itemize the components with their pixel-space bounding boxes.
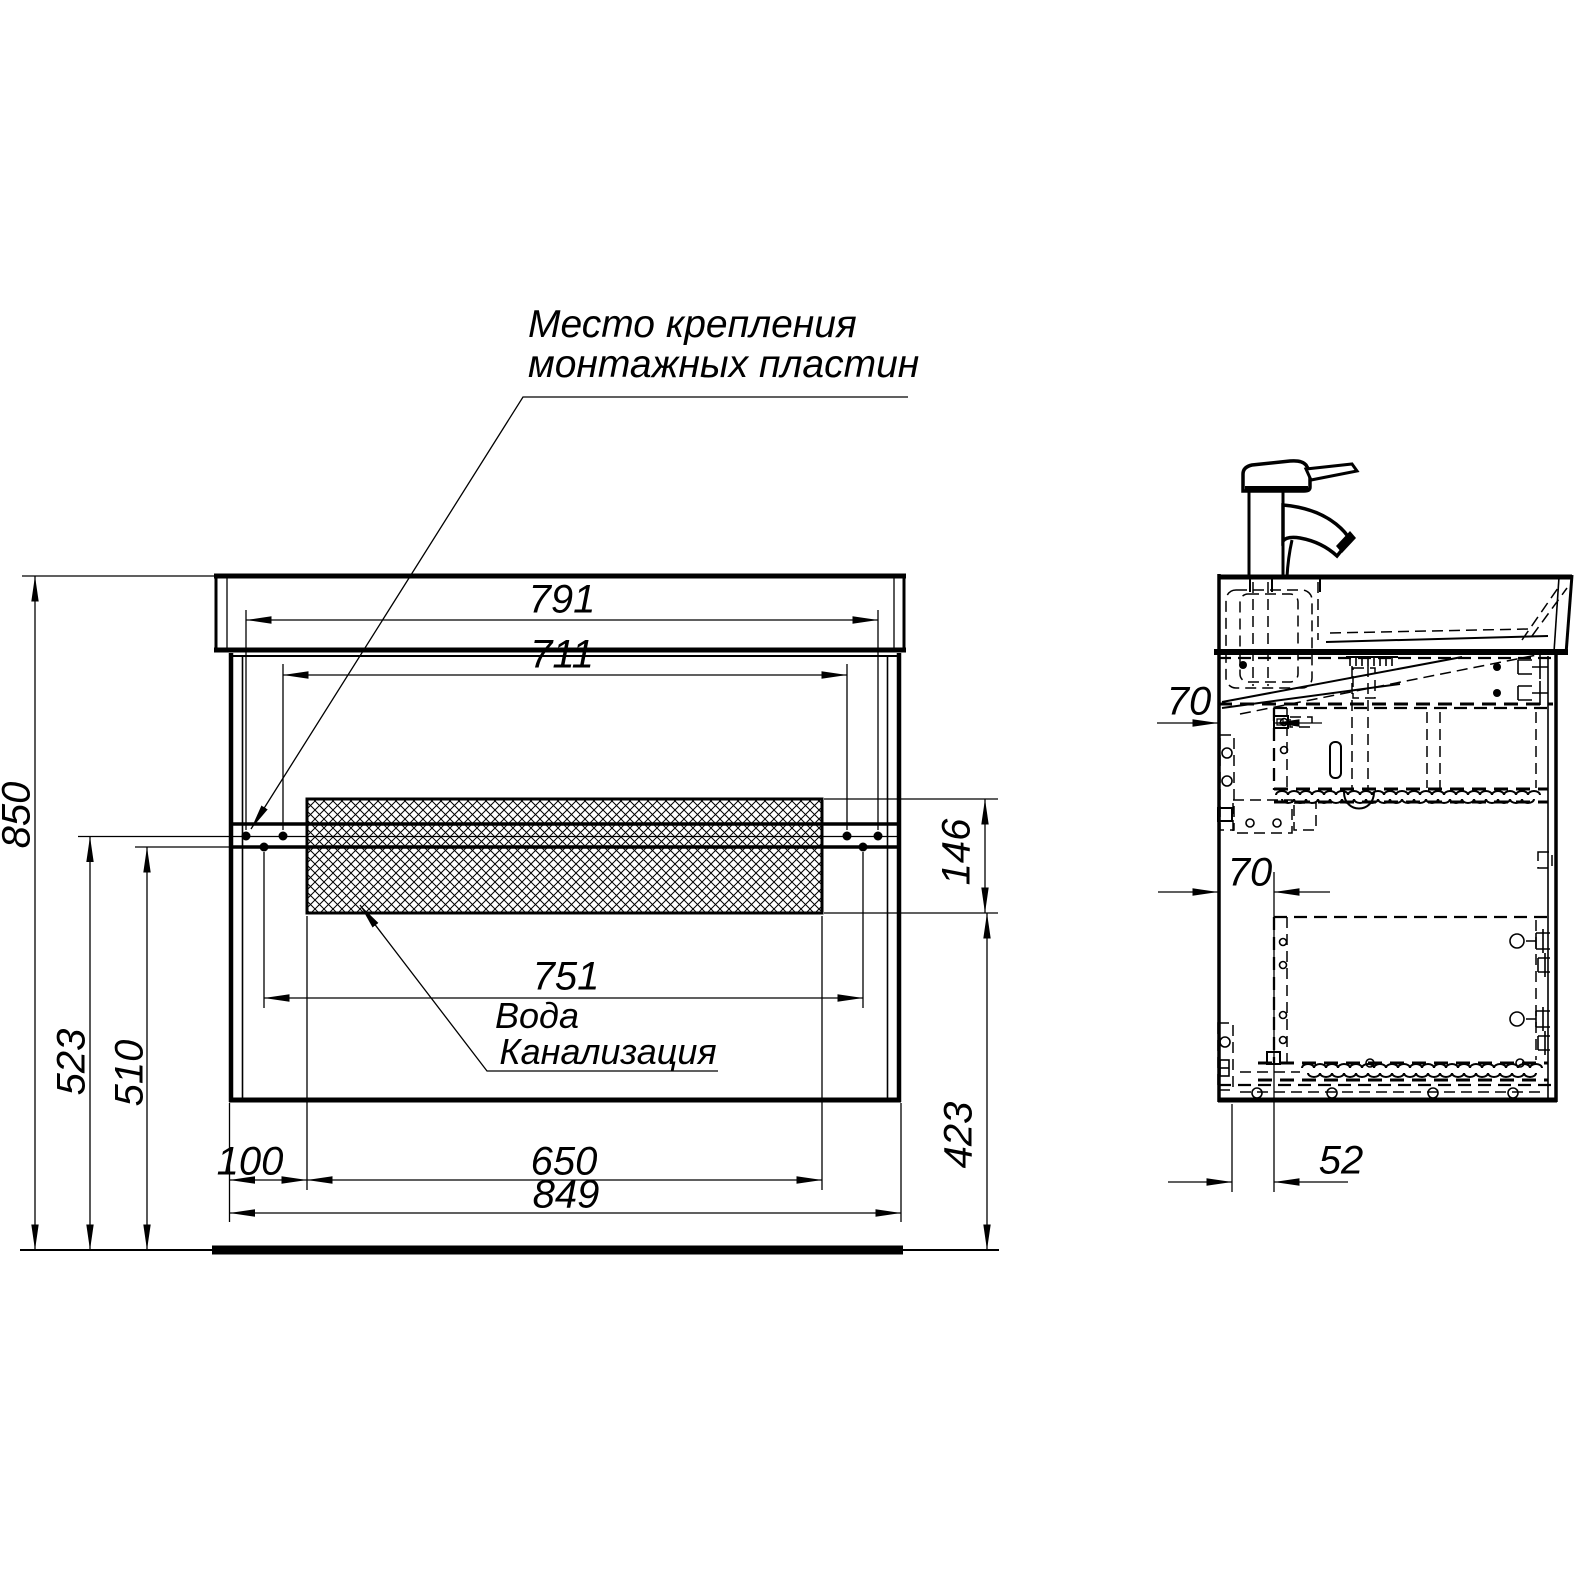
dim-523-label: 523 bbox=[50, 1029, 95, 1096]
mid-hardware bbox=[1218, 735, 1316, 833]
side-view bbox=[1157, 461, 1572, 1192]
sewer-label: Канализация bbox=[499, 1031, 716, 1073]
faucet bbox=[1243, 461, 1357, 592]
dim-52-label: 52 bbox=[1319, 1139, 1364, 1184]
drawing-canvas: Место крепления монтажных пластин 791 71… bbox=[0, 0, 1580, 1580]
dim-751-label: 751 bbox=[533, 955, 600, 1000]
upper-drawer-slide bbox=[1274, 789, 1548, 803]
dim-791-label: 791 bbox=[529, 578, 596, 623]
lower-drawer-slide bbox=[1218, 1023, 1553, 1098]
cam-lock-icon bbox=[1518, 655, 1548, 705]
hatch-area bbox=[307, 799, 822, 913]
upper-drawer bbox=[1274, 708, 1548, 790]
dim-711-label: 711 bbox=[530, 633, 594, 678]
dim-70-mid-label: 70 bbox=[1228, 851, 1273, 896]
drawer-slide-clip-icon bbox=[1510, 929, 1550, 1055]
dimension-lines-side bbox=[1157, 723, 1348, 1192]
dim-423-label: 423 bbox=[937, 1102, 982, 1169]
front-view bbox=[20, 397, 999, 1250]
dim-850-label: 850 bbox=[0, 782, 40, 849]
technical-drawing bbox=[0, 0, 1580, 1580]
mounting-note-line1: Место крепления bbox=[528, 303, 857, 347]
dim-510-label: 510 bbox=[108, 1040, 153, 1107]
dim-70-top-label: 70 bbox=[1167, 680, 1212, 725]
dim-100-label: 100 bbox=[217, 1140, 284, 1185]
mounting-note-line2: монтажных пластин bbox=[528, 343, 919, 387]
dim-146-label: 146 bbox=[935, 819, 980, 886]
dim-849-label: 849 bbox=[533, 1173, 600, 1218]
lower-drawer bbox=[1274, 852, 1552, 1063]
sink-underside bbox=[1218, 652, 1553, 714]
